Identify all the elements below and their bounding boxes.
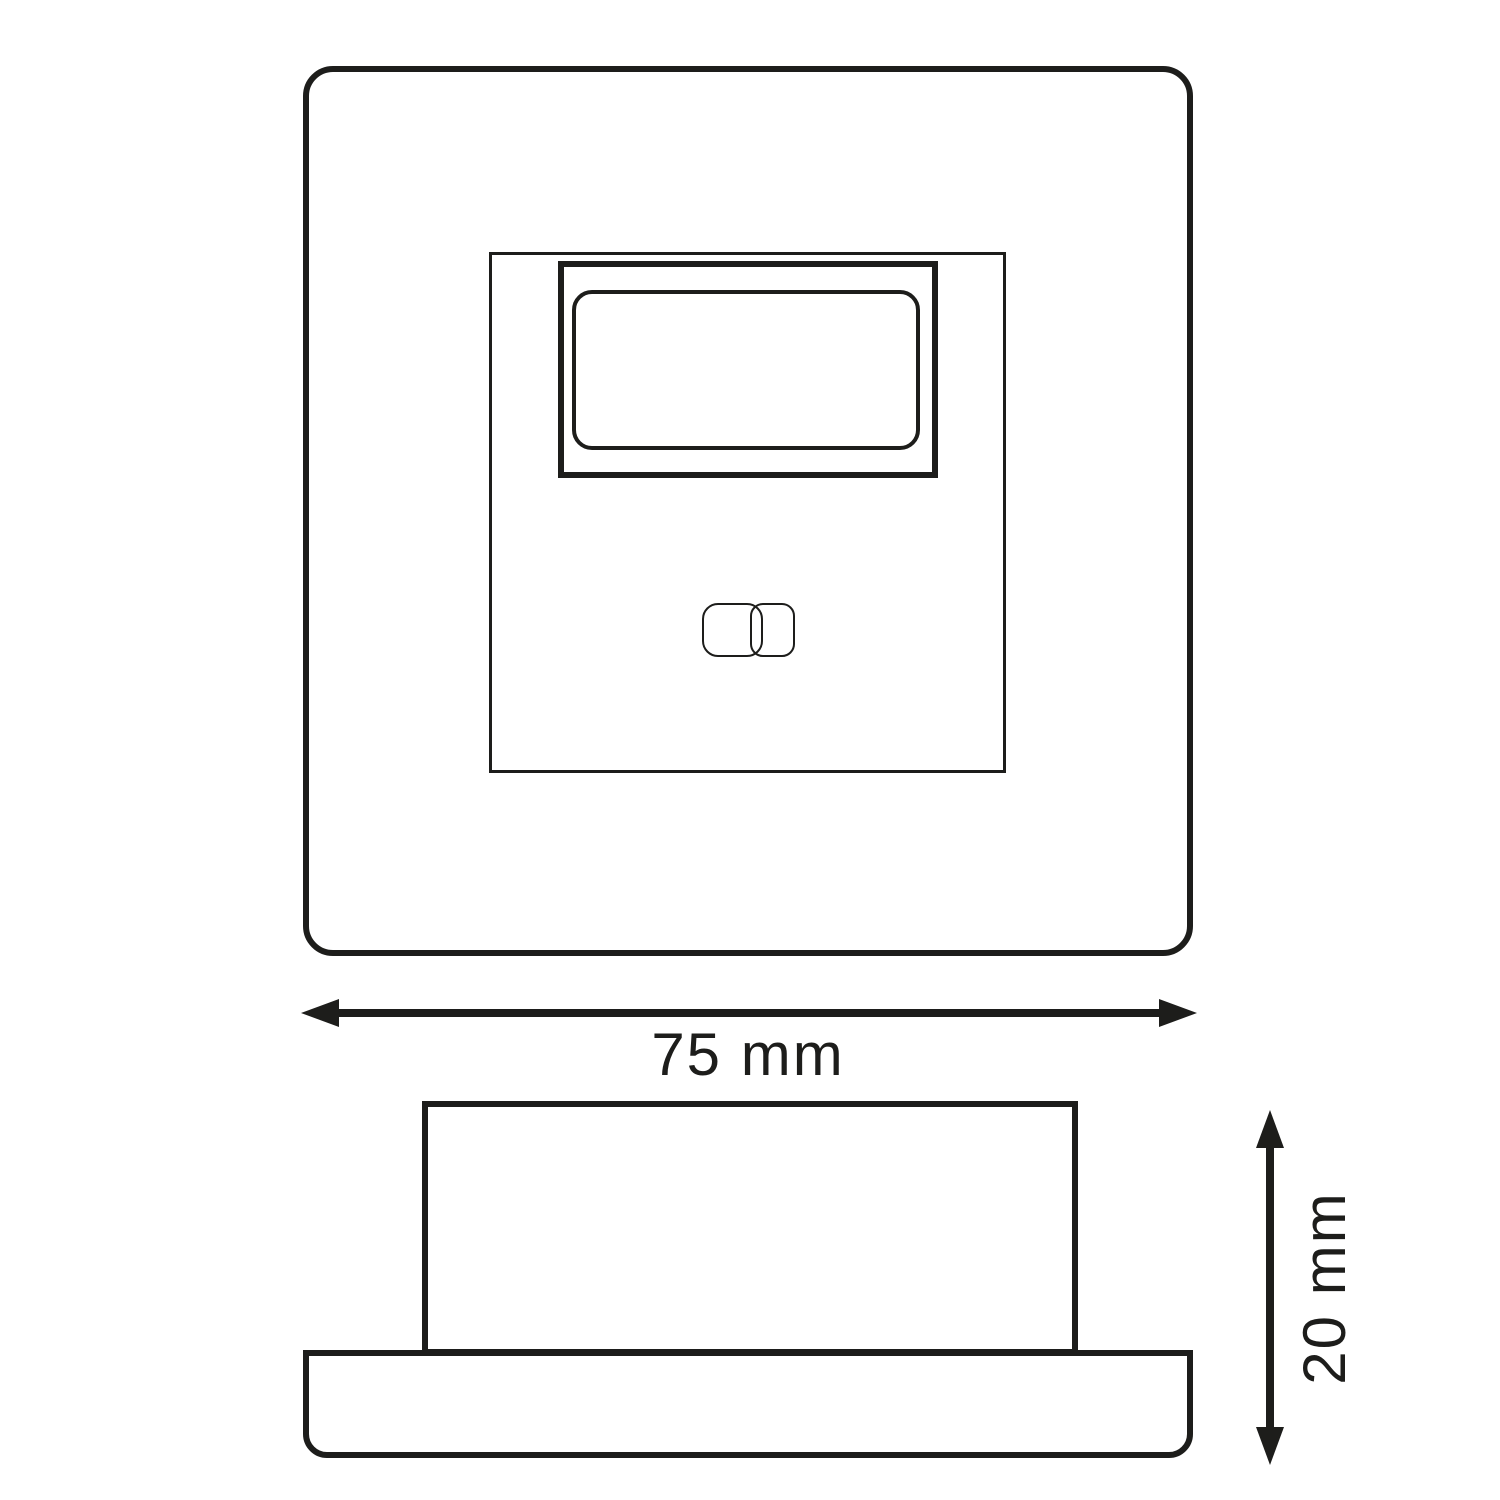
drawing-canvas: 75 mm 20 mm xyxy=(0,0,1500,1500)
side-view-body xyxy=(422,1101,1078,1355)
width-dimension-arrowhead-right-icon xyxy=(1159,999,1197,1027)
toggle-switch-knob xyxy=(750,603,795,657)
depth-dimension-arrowhead-bottom-icon xyxy=(1256,1427,1284,1465)
side-view-baseplate xyxy=(303,1350,1193,1458)
width-dimension-line xyxy=(332,1009,1164,1017)
depth-dimension-label: 20 mm xyxy=(1294,1108,1356,1468)
depth-dimension-line xyxy=(1266,1142,1274,1434)
depth-dimension-arrowhead-top-icon xyxy=(1256,1110,1284,1148)
width-dimension-label: 75 mm xyxy=(548,1024,948,1086)
width-dimension-arrowhead-left-icon xyxy=(301,999,339,1027)
display-window-inner xyxy=(572,290,920,450)
